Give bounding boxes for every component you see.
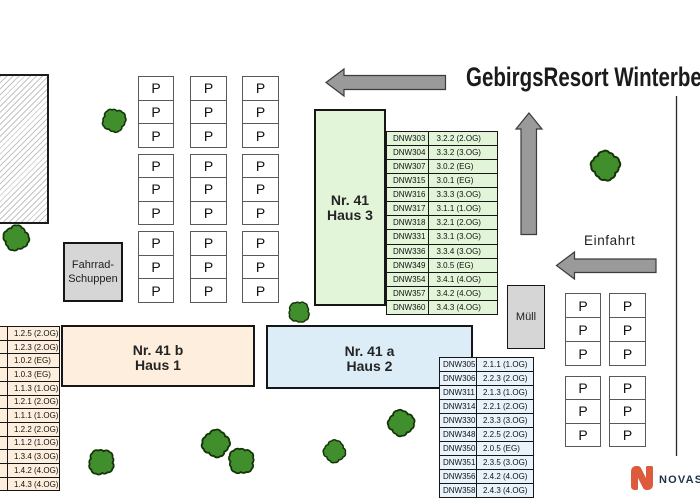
svg-text:NOVASOL: NOVASOL <box>659 474 700 486</box>
